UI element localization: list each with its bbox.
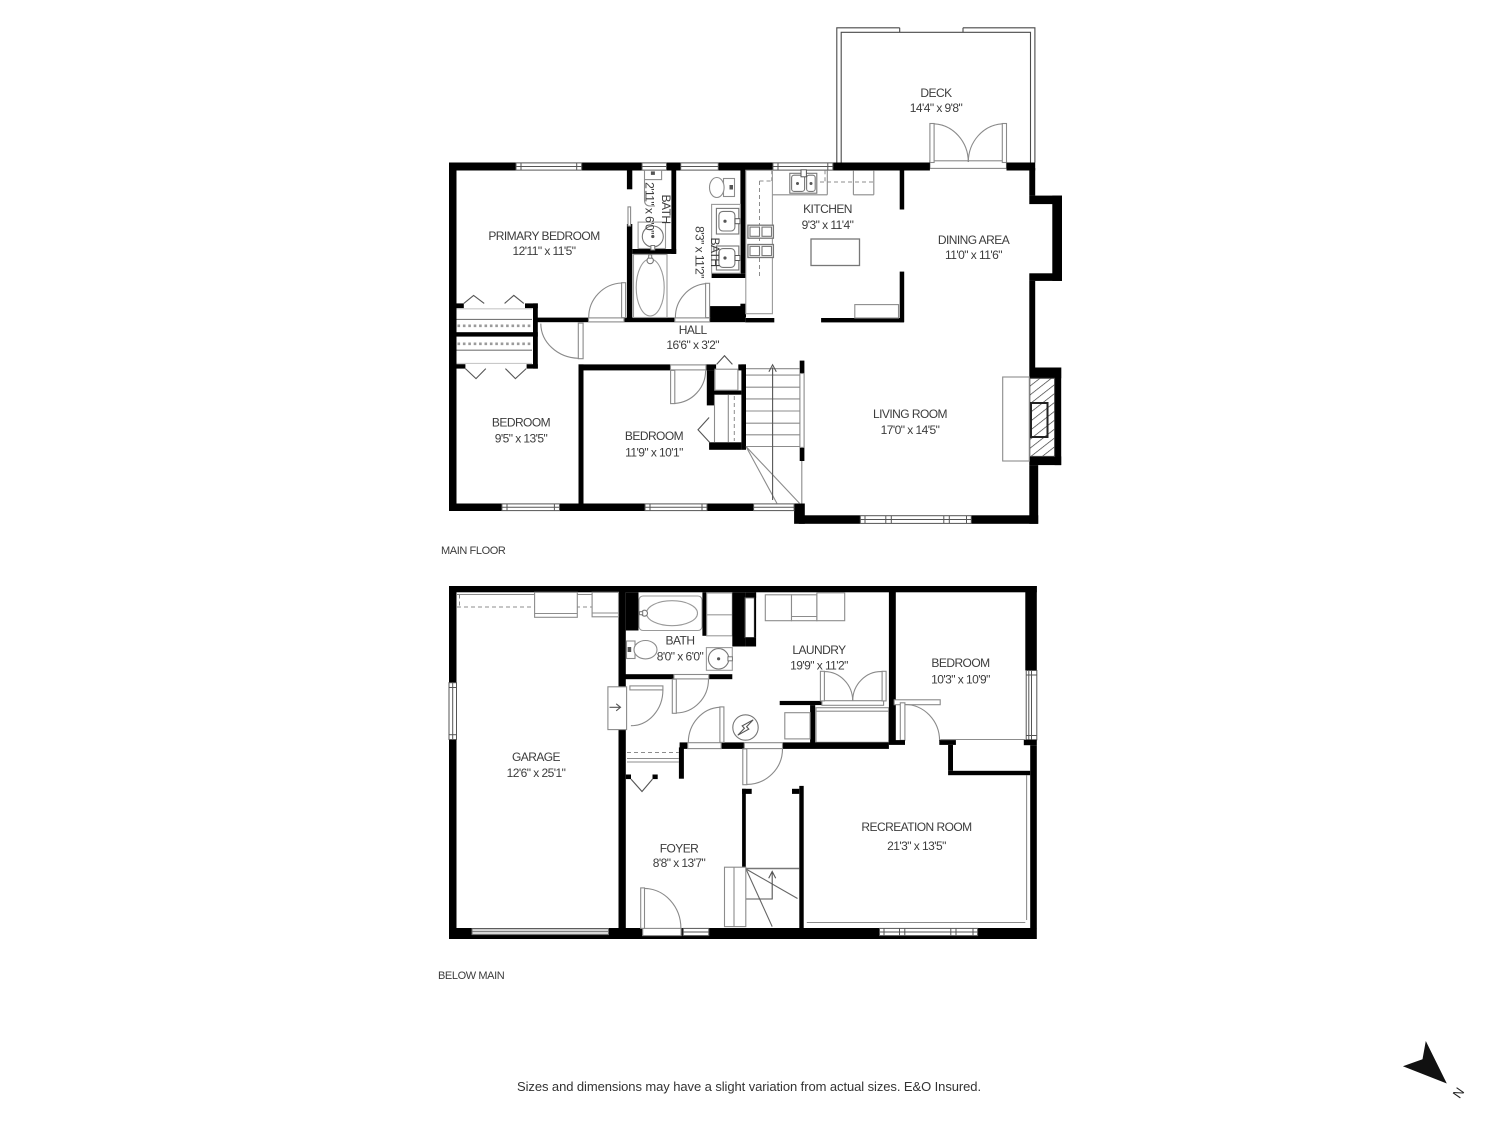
- svg-text:2'11" x 6'0": 2'11" x 6'0": [643, 182, 657, 234]
- svg-text:GARAGE: GARAGE: [512, 750, 561, 764]
- svg-text:17'0" x 14'5": 17'0" x 14'5": [881, 423, 940, 437]
- svg-text:10'3" x 10'9": 10'3" x 10'9": [931, 673, 990, 687]
- svg-text:11'0" x 11'6": 11'0" x 11'6": [945, 248, 1002, 262]
- svg-text:9'3" x 11'4": 9'3" x 11'4": [802, 218, 854, 232]
- svg-text:BEDROOM: BEDROOM: [931, 656, 990, 670]
- svg-text:PRIMARY BEDROOM: PRIMARY BEDROOM: [488, 229, 600, 243]
- svg-text:8'3" x 11'2": 8'3" x 11'2": [693, 226, 707, 278]
- svg-text:HALL: HALL: [679, 323, 708, 337]
- svg-text:LAUNDRY: LAUNDRY: [792, 643, 846, 657]
- svg-text:DECK: DECK: [920, 86, 952, 100]
- svg-text:BATH: BATH: [666, 634, 695, 648]
- svg-text:FOYER: FOYER: [660, 842, 699, 856]
- svg-text:14'4" x 9'8": 14'4" x 9'8": [910, 101, 963, 115]
- svg-text:BEDROOM: BEDROOM: [625, 429, 684, 443]
- svg-text:RECREATION ROOM: RECREATION ROOM: [861, 820, 972, 834]
- svg-text:11'9" x 10'1": 11'9" x 10'1": [625, 446, 683, 460]
- svg-text:21'3" x 13'5": 21'3" x 13'5": [887, 839, 946, 853]
- svg-text:16'6" x 3'2": 16'6" x 3'2": [666, 338, 719, 352]
- svg-text:BATH: BATH: [708, 238, 722, 267]
- svg-text:8'8" x 13'7": 8'8" x 13'7": [653, 856, 706, 870]
- svg-text:KITCHEN: KITCHEN: [803, 202, 852, 216]
- svg-text:LIVING ROOM: LIVING ROOM: [873, 407, 948, 421]
- svg-text:BEDROOM: BEDROOM: [492, 416, 551, 430]
- svg-text:BELOW MAIN: BELOW MAIN: [438, 970, 505, 982]
- svg-text:BATH: BATH: [659, 195, 673, 224]
- svg-text:8'0" x 6'0": 8'0" x 6'0": [657, 650, 704, 664]
- svg-text:MAIN FLOOR: MAIN FLOOR: [441, 545, 506, 557]
- svg-text:DINING AREA: DINING AREA: [938, 233, 1010, 247]
- svg-text:19'9" x 11'2": 19'9" x 11'2": [790, 659, 848, 673]
- svg-text:12'6" x 25'1": 12'6" x 25'1": [507, 766, 566, 780]
- svg-text:9'5" x 13'5": 9'5" x 13'5": [495, 432, 548, 446]
- svg-text:Sizes and dimensions may have: Sizes and dimensions may have a slight v…: [517, 1079, 981, 1094]
- svg-text:12'11" x 11'5": 12'11" x 11'5": [512, 244, 575, 258]
